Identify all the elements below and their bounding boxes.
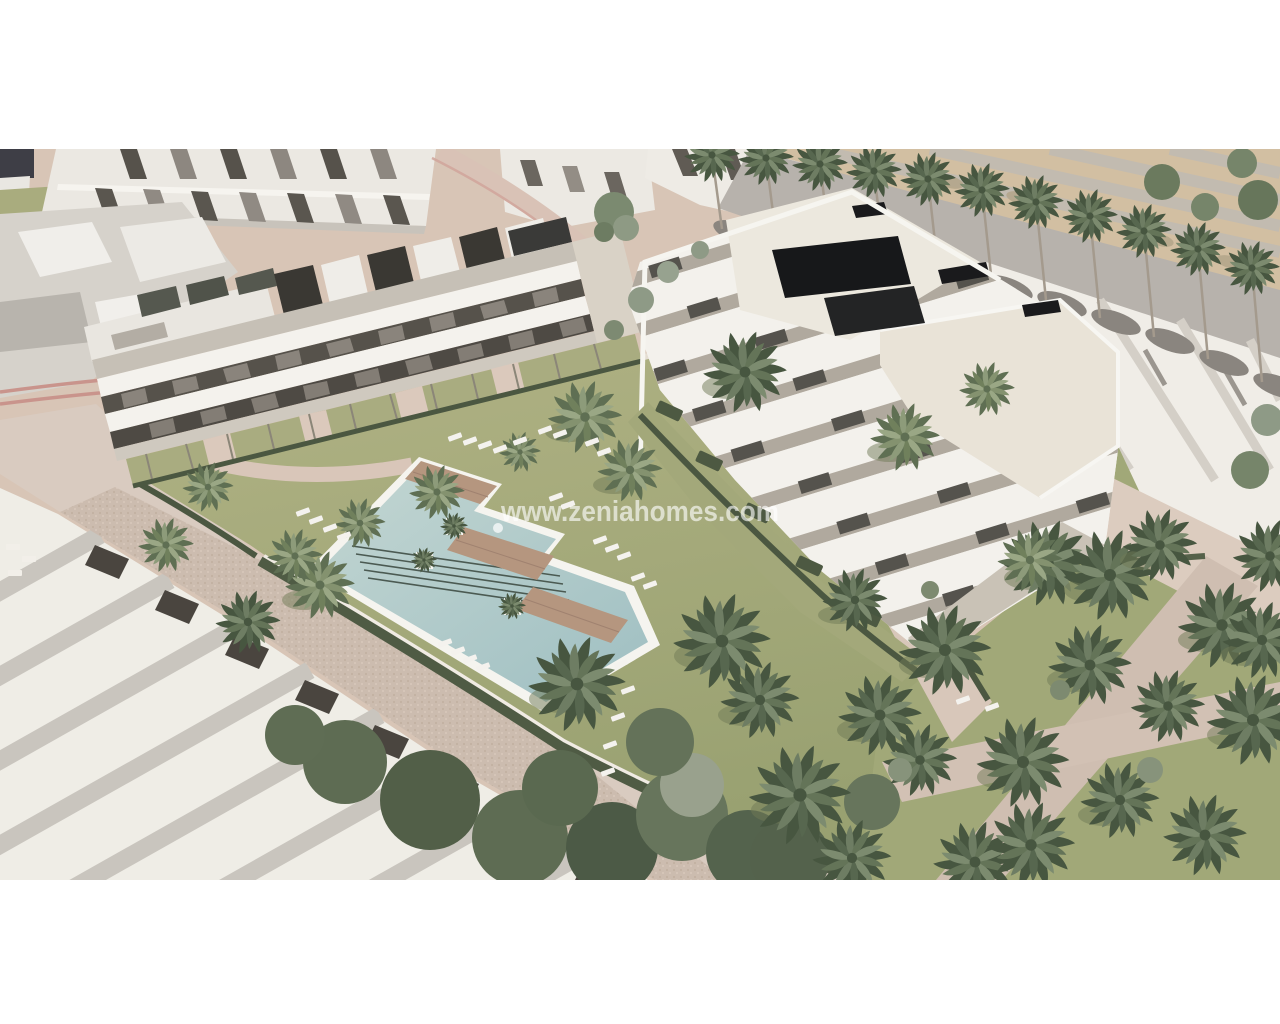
svg-text:www.zeniahomes.com: www.zeniahomes.com xyxy=(500,496,779,528)
